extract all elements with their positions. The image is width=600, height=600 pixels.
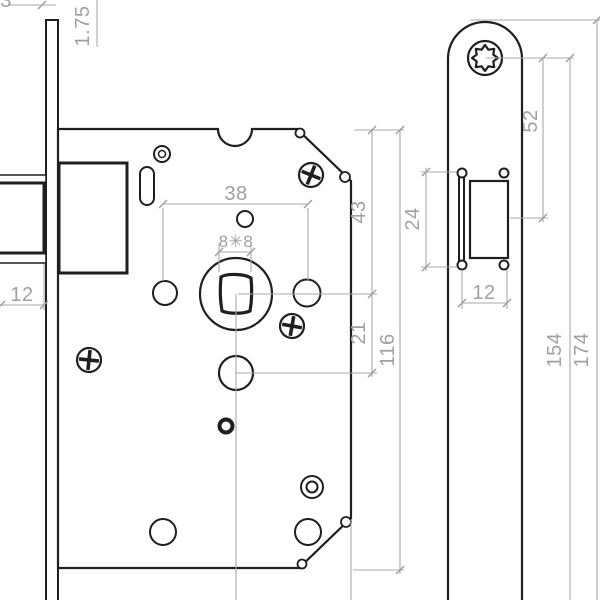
fixing-hole-left — [153, 281, 177, 305]
small-hole — [237, 211, 253, 227]
bottom-hole-right — [295, 519, 321, 545]
drawing-svg: 3 1.75 12 38 8✳8 43 21 116 52 24 12 154 … — [0, 0, 600, 600]
dim-latch-cutout-height: 24 — [402, 207, 424, 230]
dim-top-to-center: 43 — [348, 200, 370, 223]
dim-faceplate-length: 174 — [571, 333, 593, 368]
dim-latch-width-front: 12 — [10, 284, 33, 306]
fixing-hole-right — [294, 280, 321, 307]
dim-spindle-square: 8✳8 — [219, 232, 254, 251]
dim-center-to-cylinder: 21 — [348, 321, 370, 344]
side-view — [448, 22, 522, 600]
latch-housing — [59, 163, 127, 273]
corner-rivet-4 — [298, 560, 307, 569]
latch-head-face — [0, 183, 44, 253]
faceplate-edge — [46, 20, 58, 600]
corner-rivet-3 — [341, 517, 351, 527]
front-view — [0, 20, 351, 600]
dim-case-height: 116 — [377, 333, 399, 366]
dim-hole-spacing: 38 — [224, 183, 247, 205]
corner-rivet-2 — [340, 172, 350, 182]
guide-slot — [140, 167, 154, 205]
bottom-hole-left — [150, 519, 176, 545]
phillips-screw-left-icon — [76, 347, 102, 373]
dim-latch-cutout-width: 12 — [472, 282, 495, 304]
dim-screw-to-latch: 52 — [520, 109, 542, 132]
lock-technical-drawing: 3 1.75 12 38 8✳8 43 21 116 52 24 12 154 … — [0, 0, 600, 600]
corner-rivet-1 — [296, 129, 305, 138]
faceplate-front — [448, 22, 522, 600]
dim-screw-spacing: 154 — [544, 333, 566, 368]
dim-partial-top: 3 — [0, 0, 12, 12]
pin-ring — [220, 420, 233, 433]
rivet-ring-outer — [154, 146, 170, 162]
bushing-ring-outer — [301, 476, 323, 498]
dim-faceplate-thickness: 1.75 — [72, 6, 94, 47]
